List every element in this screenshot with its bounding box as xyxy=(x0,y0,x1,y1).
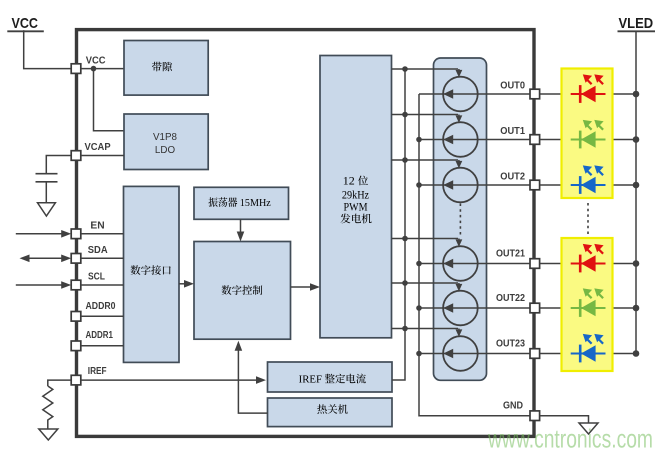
svg-text:发电机: 发电机 xyxy=(340,212,372,227)
svg-text:OUT21: OUT21 xyxy=(496,249,525,260)
svg-text:VLED: VLED xyxy=(619,15,654,32)
svg-text:带隙: 带隙 xyxy=(152,58,173,73)
svg-text:OUT22: OUT22 xyxy=(496,293,525,304)
svg-text:OUT2: OUT2 xyxy=(500,172,525,183)
svg-text:OUT23: OUT23 xyxy=(496,339,525,350)
svg-text:SCL: SCL xyxy=(88,272,106,283)
svg-text:数字控制: 数字控制 xyxy=(221,282,263,297)
svg-text:EN: EN xyxy=(90,220,104,231)
svg-text:GND: GND xyxy=(503,400,523,411)
svg-text:12 位: 12 位 xyxy=(343,174,369,189)
svg-text:VCAP: VCAP xyxy=(85,142,111,153)
svg-text:ADDR1: ADDR1 xyxy=(86,330,114,341)
svg-text:热关机: 热关机 xyxy=(317,401,349,416)
svg-text:IREF 整定电流: IREF 整定电流 xyxy=(299,371,367,386)
svg-text:IREF: IREF xyxy=(88,366,107,377)
svg-text:振荡器 15MHz: 振荡器 15MHz xyxy=(208,194,271,209)
svg-text:OUT1: OUT1 xyxy=(500,126,525,137)
svg-text:VCC: VCC xyxy=(86,55,106,66)
svg-text:LDO: LDO xyxy=(155,145,176,156)
svg-text:www.cntronics.com: www.cntronics.com xyxy=(487,424,653,454)
svg-text:SDA: SDA xyxy=(88,245,108,256)
svg-text:VCC: VCC xyxy=(12,15,39,32)
svg-text:V1P8: V1P8 xyxy=(153,132,178,143)
svg-text:数字接口: 数字接口 xyxy=(130,262,172,277)
svg-text:ADDR0: ADDR0 xyxy=(86,301,116,312)
svg-text:OUT0: OUT0 xyxy=(500,81,525,92)
